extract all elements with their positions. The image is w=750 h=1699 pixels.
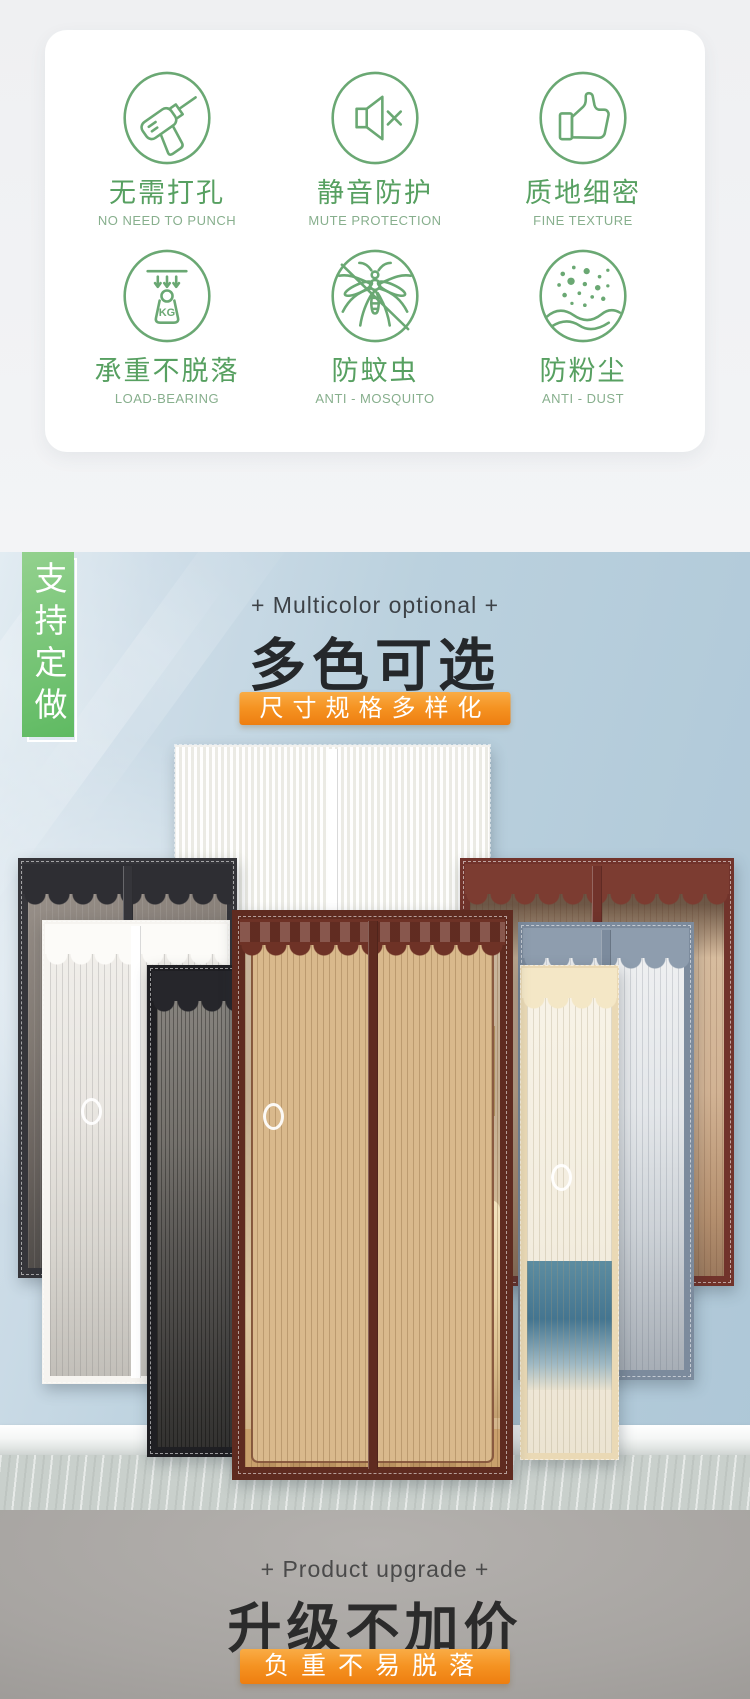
- feature-anti-dust: 防粉尘 ANTI - DUST: [479, 248, 687, 426]
- feature-title: 防粉尘: [540, 356, 627, 386]
- svg-text:KG: KG: [159, 307, 176, 319]
- feature-subtitle: LOAD-BEARING: [115, 391, 219, 406]
- feature-subtitle: NO NEED TO PUNCH: [98, 213, 236, 228]
- mosquito-icon: [329, 248, 421, 344]
- curtain-brown: [232, 910, 513, 1480]
- multicolor-section: 支持定做 + Multicolor optional + 多色可选 尺寸规格多样…: [0, 552, 750, 1510]
- feature-load-bearing: KG 承重不脱落 LOAD-BEARING: [63, 248, 271, 426]
- section-badge: 尺寸规格多样化: [240, 692, 511, 725]
- hook-ring: [263, 1103, 284, 1130]
- mute-speaker-icon: [329, 70, 421, 166]
- feature-title: 静音防护: [317, 178, 433, 208]
- thumbs-up-icon: [537, 70, 629, 166]
- hook-ring: [81, 1098, 102, 1125]
- feature-mute: 静音防护 MUTE PROTECTION: [271, 70, 479, 248]
- feature-title: 无需打孔: [109, 178, 225, 208]
- curtain-divider: [368, 921, 378, 1469]
- feature-no-punch: 无需打孔 NO NEED TO PUNCH: [63, 70, 271, 248]
- feature-anti-mosquito: 防蚊虫 ANTI - MOSQUITO: [271, 248, 479, 426]
- curtain-divider: [131, 926, 141, 1378]
- feature-fine-texture: 质地细密 FINE TEXTURE: [479, 70, 687, 248]
- feature-title: 质地细密: [525, 178, 641, 208]
- feature-subtitle: FINE TEXTURE: [533, 213, 633, 228]
- feature-subtitle: MUTE PROTECTION: [308, 213, 441, 228]
- section-title: 多色可选: [0, 620, 750, 702]
- features-section: 无需打孔 NO NEED TO PUNCH 静音防护 MUTE PROTECTI…: [0, 0, 750, 552]
- drill-icon: [121, 70, 213, 166]
- lace-trim: [522, 968, 617, 998]
- upgrade-section: + Product upgrade + 升级不加价 负重不易脱落: [0, 1510, 750, 1699]
- section-eyebrow: + Product upgrade +: [0, 1556, 750, 1583]
- feature-title: 防蚊虫: [332, 356, 419, 386]
- features-card: 无需打孔 NO NEED TO PUNCH 静音防护 MUTE PROTECTI…: [45, 30, 705, 452]
- curtain-cream: [520, 965, 619, 1460]
- product-detail-page: 无需打孔 NO NEED TO PUNCH 静音防护 MUTE PROTECTI…: [0, 0, 750, 1699]
- section-eyebrow: + Multicolor optional +: [0, 592, 750, 619]
- weight-kg-icon: KG: [121, 248, 213, 344]
- feature-subtitle: ANTI - MOSQUITO: [315, 391, 434, 406]
- section-badge: 负重不易脱落: [240, 1649, 510, 1684]
- dust-icon: [537, 248, 629, 344]
- feature-subtitle: ANTI - DUST: [542, 391, 624, 406]
- feature-title: 承重不脱落: [95, 356, 240, 386]
- features-grid: 无需打孔 NO NEED TO PUNCH 静音防护 MUTE PROTECTI…: [45, 30, 705, 452]
- bedroom-rug-photo: [527, 1261, 612, 1391]
- hook-ring: [551, 1164, 572, 1191]
